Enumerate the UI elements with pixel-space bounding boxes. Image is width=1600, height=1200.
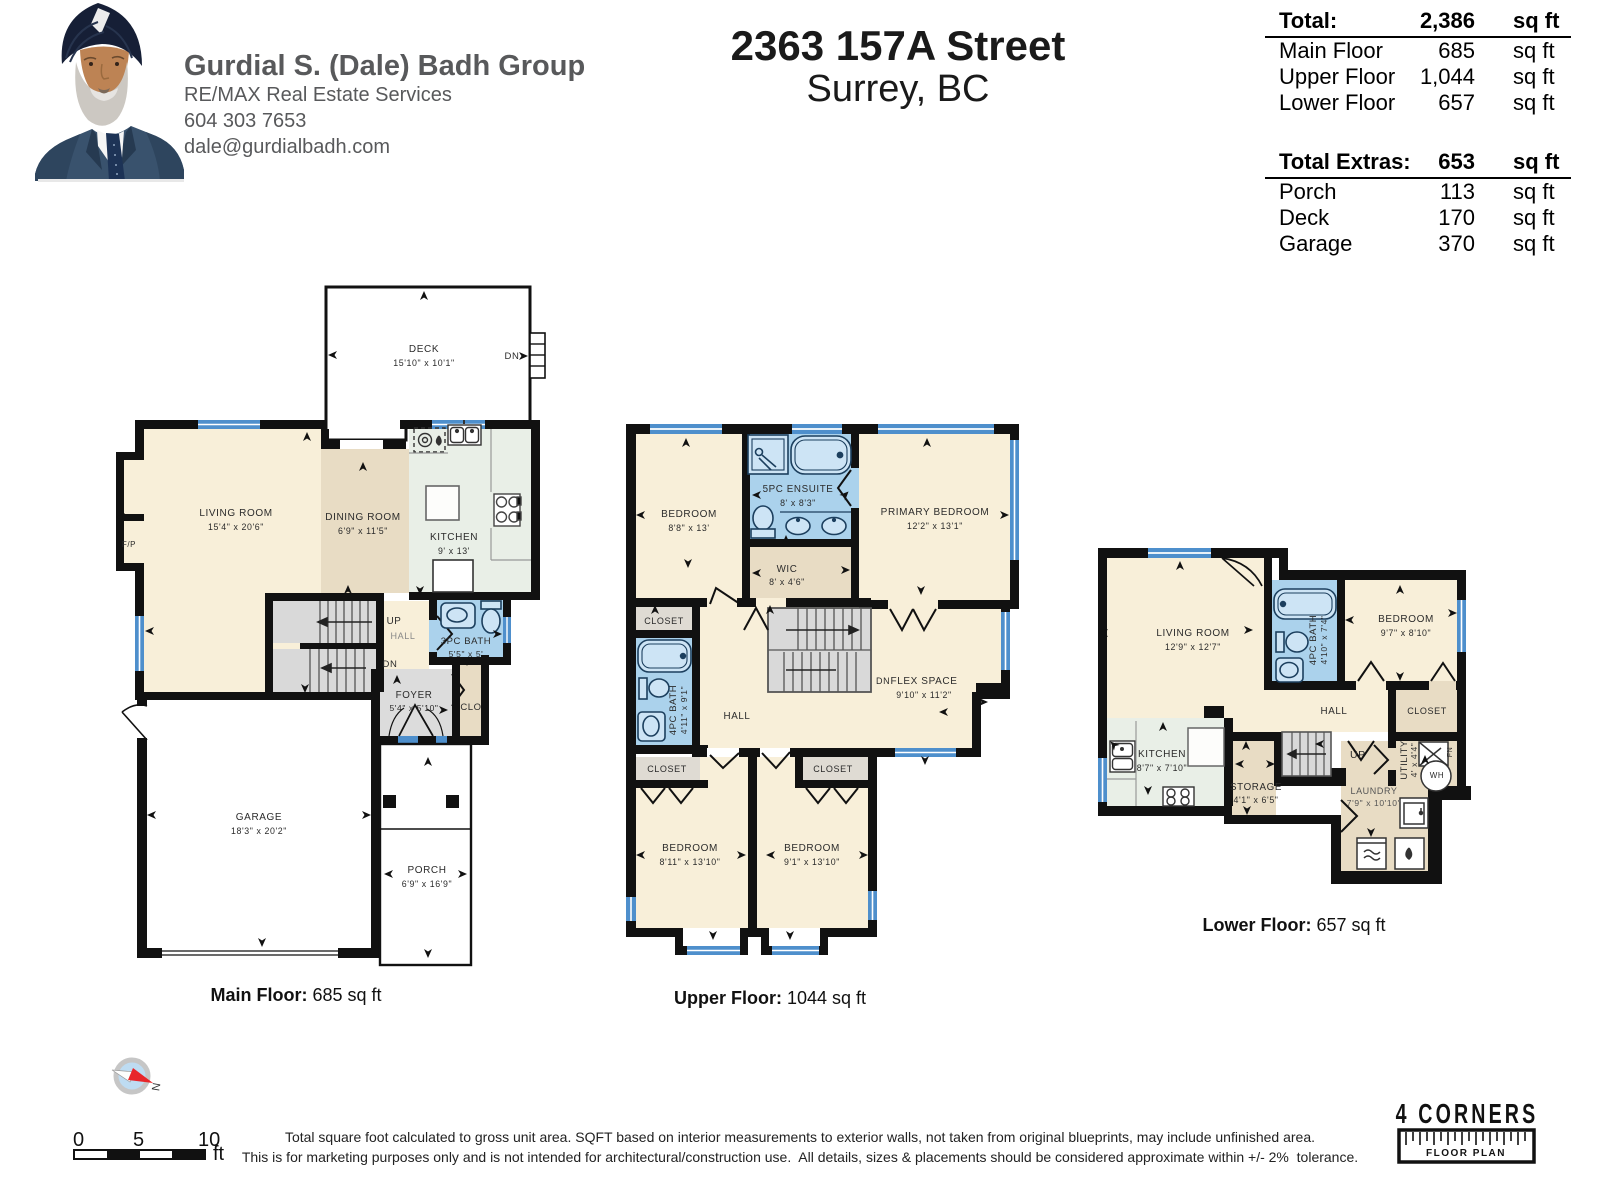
svg-text:UP: UP (1350, 749, 1366, 761)
svg-text:9'10" x 11'2": 9'10" x 11'2" (896, 690, 951, 700)
svg-text:ft: ft (213, 1143, 225, 1165)
svg-text:DINING ROOM: DINING ROOM (325, 512, 401, 523)
svg-text:PORCH: PORCH (407, 865, 446, 876)
svg-text:UP: UP (387, 616, 402, 627)
svg-text:CLOSET: CLOSET (813, 764, 853, 774)
svg-text:12'2" x 13'1": 12'2" x 13'1" (907, 521, 963, 531)
svg-text:STORAGE: STORAGE (1230, 782, 1282, 793)
svg-text:CLOSET: CLOSET (647, 764, 687, 774)
svg-text:5: 5 (133, 1129, 144, 1151)
svg-text:HALL: HALL (391, 631, 416, 641)
svg-text:4 CORNERS: 4 CORNERS (1396, 1099, 1539, 1130)
svg-text:KITCHEN: KITCHEN (430, 532, 478, 543)
svg-text:8'7" x 7'10": 8'7" x 7'10" (1137, 763, 1188, 773)
svg-text:7'9" x 10'10": 7'9" x 10'10" (1347, 798, 1401, 808)
svg-text:5'5" x 5': 5'5" x 5' (449, 649, 484, 659)
svg-text:BEDROOM: BEDROOM (784, 843, 840, 854)
svg-text:4'1" x 6'5": 4'1" x 6'5" (1233, 795, 1278, 805)
svg-text:4' x 4'4": 4' x 4'4" (1409, 743, 1419, 778)
svg-text:DN: DN (876, 676, 890, 686)
svg-text:4'10" x 7'4": 4'10" x 7'4" (1319, 615, 1329, 664)
svg-text:9'7" x 8'10": 9'7" x 8'10" (1381, 628, 1432, 638)
svg-text:8' x 8'3": 8' x 8'3" (780, 498, 816, 508)
svg-text:DN: DN (505, 351, 520, 362)
svg-text:KITCHEN: KITCHEN (1138, 749, 1186, 760)
svg-text:6'9" x 11'5": 6'9" x 11'5" (338, 526, 388, 536)
svg-text:8'8" x 13': 8'8" x 13' (668, 523, 709, 533)
svg-text:F/P: F/P (122, 540, 136, 549)
svg-text:LIVING ROOM: LIVING ROOM (199, 508, 272, 519)
svg-text:PRIMARY BEDROOM: PRIMARY BEDROOM (881, 507, 990, 518)
svg-text:18'3" x 20'2": 18'3" x 20'2" (231, 826, 287, 836)
svg-text:FOYER: FOYER (396, 690, 433, 701)
svg-text:5'4" x 5'10": 5'4" x 5'10" (389, 703, 438, 713)
svg-text:9' x 13': 9' x 13' (438, 546, 470, 556)
svg-text:BEDROOM: BEDROOM (661, 509, 717, 520)
svg-text:6'9" x 16'9": 6'9" x 16'9" (402, 879, 453, 889)
svg-text:BEDROOM: BEDROOM (662, 843, 718, 854)
svg-text:8'11" x 13'10": 8'11" x 13'10" (660, 857, 721, 867)
svg-text:15'10" x 10'1": 15'10" x 10'1" (393, 358, 455, 368)
svg-text:8' x 4'6": 8' x 4'6" (769, 577, 805, 587)
svg-text:3PC BATH: 3PC BATH (441, 636, 492, 647)
svg-text:GARAGE: GARAGE (236, 812, 282, 823)
svg-text:CLO: CLO (460, 702, 481, 713)
svg-text:FN: FN (1447, 747, 1454, 758)
svg-text:DN: DN (383, 659, 398, 670)
svg-text:4'11" x 9'1": 4'11" x 9'1" (679, 686, 689, 734)
svg-text:0: 0 (73, 1129, 84, 1151)
svg-text:WIC: WIC (777, 564, 798, 575)
svg-text:CLOSET: CLOSET (644, 616, 684, 626)
svg-text:CLOSET: CLOSET (1407, 706, 1447, 716)
svg-text:HALL: HALL (1321, 706, 1348, 717)
svg-text:WH: WH (1430, 771, 1445, 780)
svg-text:FLEX SPACE: FLEX SPACE (891, 676, 958, 687)
svg-text:HALL: HALL (724, 711, 751, 722)
svg-text:BEDROOM: BEDROOM (1378, 614, 1434, 625)
svg-text:4PC BATH: 4PC BATH (1308, 615, 1319, 666)
svg-text:FLOOR PLAN: FLOOR PLAN (1426, 1148, 1506, 1159)
svg-text:5PC ENSUITE: 5PC ENSUITE (763, 484, 834, 495)
svg-text:LAUNDRY: LAUNDRY (1350, 786, 1397, 796)
svg-text:LIVING ROOM: LIVING ROOM (1156, 628, 1229, 639)
svg-text:9'1" x 13'10": 9'1" x 13'10" (784, 857, 840, 867)
svg-text:4PC BATH: 4PC BATH (668, 685, 679, 736)
svg-text:15'4" x 20'6": 15'4" x 20'6" (208, 522, 264, 532)
svg-text:DECK: DECK (409, 344, 439, 355)
svg-text:N: N (149, 1082, 162, 1092)
svg-text:12'9" x 12'7": 12'9" x 12'7" (1165, 642, 1221, 652)
